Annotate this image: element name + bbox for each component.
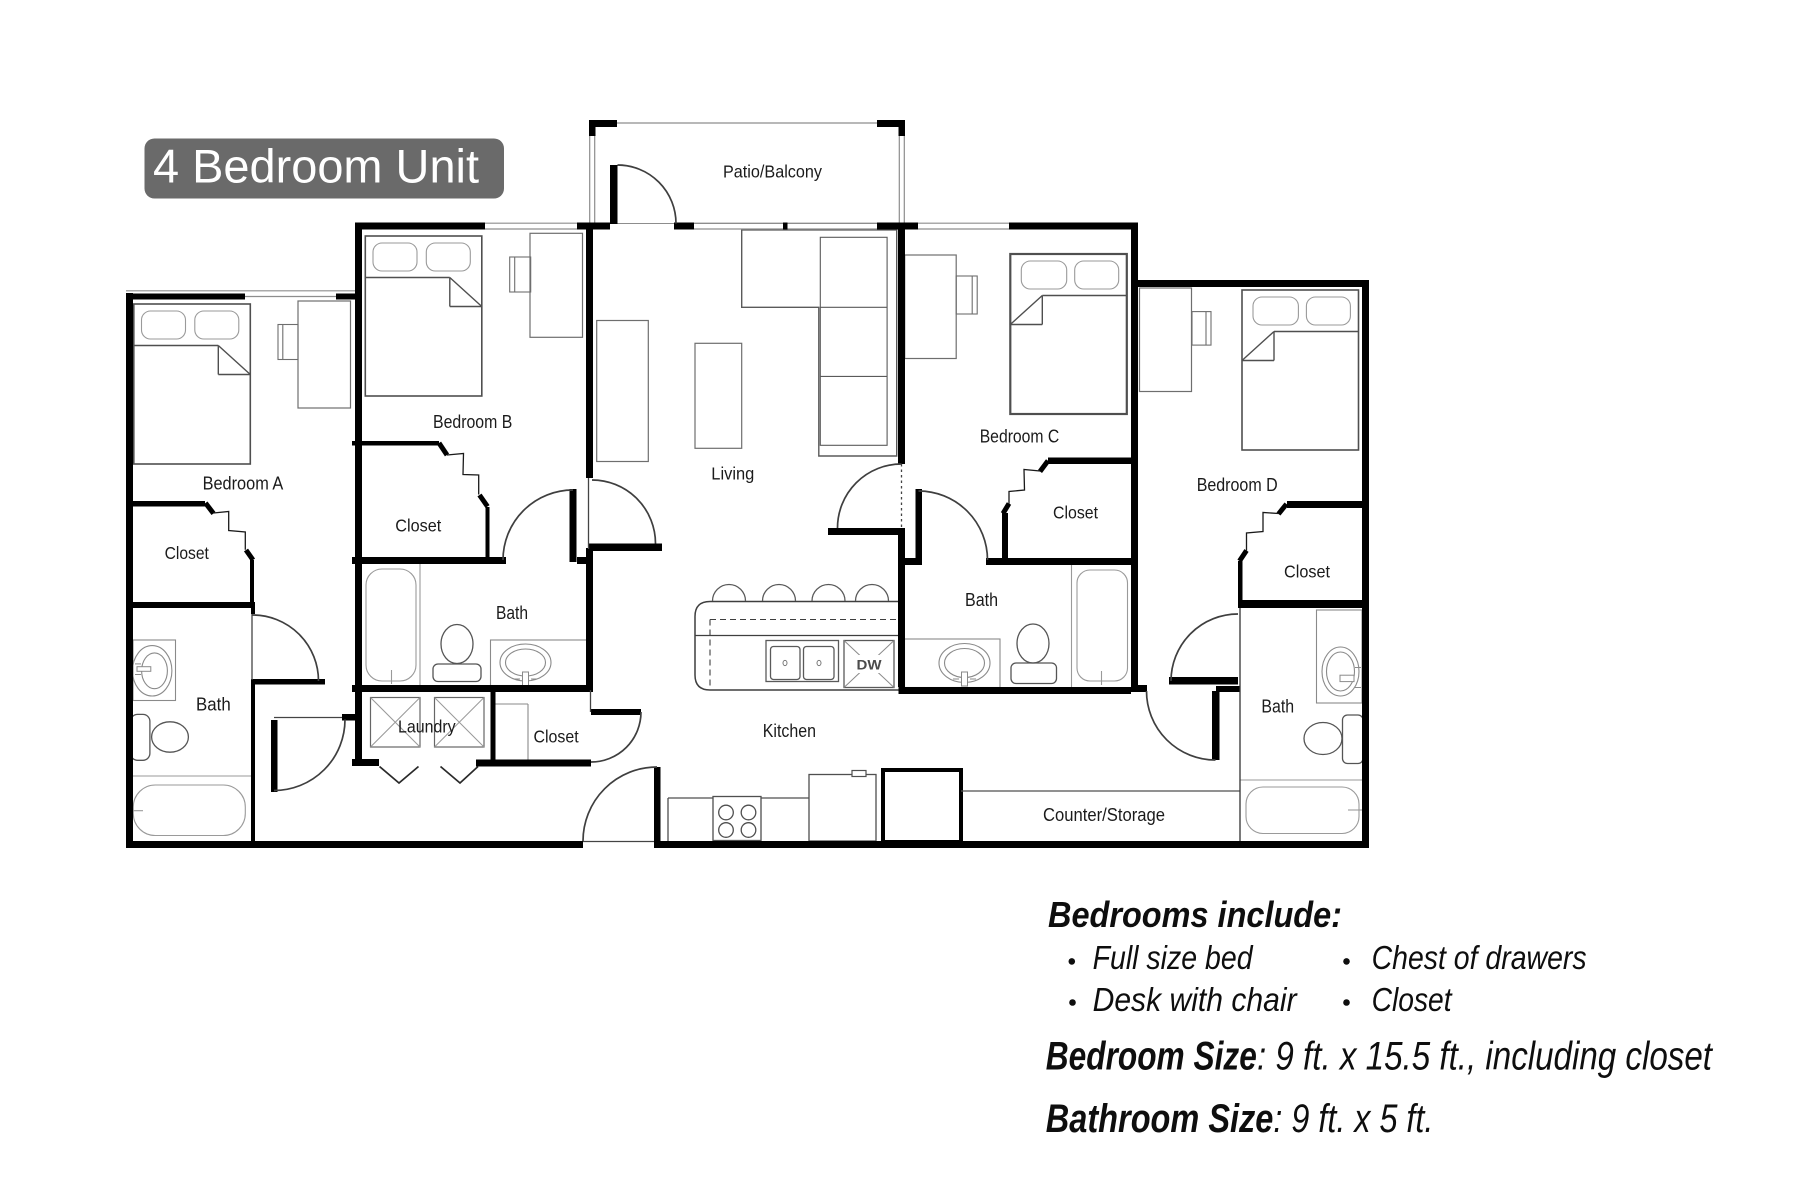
svg-text:Kitchen: Kitchen: [763, 721, 816, 741]
svg-text:Closet: Closet: [165, 543, 209, 563]
svg-text:: 9 ft. x 15.5 ft., including: : 9 ft. x 15.5 ft., including closet: [1257, 1034, 1714, 1078]
svg-text:DW: DW: [857, 658, 882, 673]
svg-text:Bathroom Size: Bathroom Size: [1046, 1097, 1274, 1141]
svg-text:Counter/Storage: Counter/Storage: [1043, 805, 1165, 825]
svg-text:Bath: Bath: [196, 695, 231, 715]
svg-text:Closet: Closet: [1284, 562, 1330, 582]
svg-text:4 Bedroom Unit: 4 Bedroom Unit: [153, 139, 479, 192]
svg-text:Closet: Closet: [1053, 503, 1098, 523]
svg-text:Desk with chair: Desk with chair: [1093, 981, 1299, 1018]
svg-text:: 9 ft. x 5 ft.: : 9 ft. x 5 ft.: [1273, 1097, 1433, 1141]
svg-text:Bath: Bath: [1261, 697, 1294, 717]
svg-text:Bath: Bath: [965, 590, 998, 610]
svg-text:Bedrooms include:: Bedrooms include:: [1048, 894, 1342, 935]
svg-text:Bedroom D: Bedroom D: [1197, 474, 1278, 495]
svg-text:Laundry: Laundry: [398, 717, 456, 737]
svg-text:Bedroom C: Bedroom C: [980, 426, 1060, 447]
svg-text:Chest of drawers: Chest of drawers: [1372, 939, 1587, 976]
svg-text:Living: Living: [711, 464, 754, 484]
svg-text:Bedroom B: Bedroom B: [433, 411, 512, 432]
svg-text:Closet: Closet: [1372, 981, 1454, 1018]
svg-text:Bedroom Size: Bedroom Size: [1046, 1034, 1257, 1078]
svg-text:Closet: Closet: [534, 726, 579, 746]
svg-text:Bath: Bath: [496, 603, 528, 623]
svg-text:Full size bed: Full size bed: [1093, 939, 1254, 976]
svg-text:Patio/Balcony: Patio/Balcony: [723, 161, 822, 181]
svg-text:Bedroom A: Bedroom A: [203, 472, 284, 493]
svg-text:Closet: Closet: [395, 516, 441, 536]
